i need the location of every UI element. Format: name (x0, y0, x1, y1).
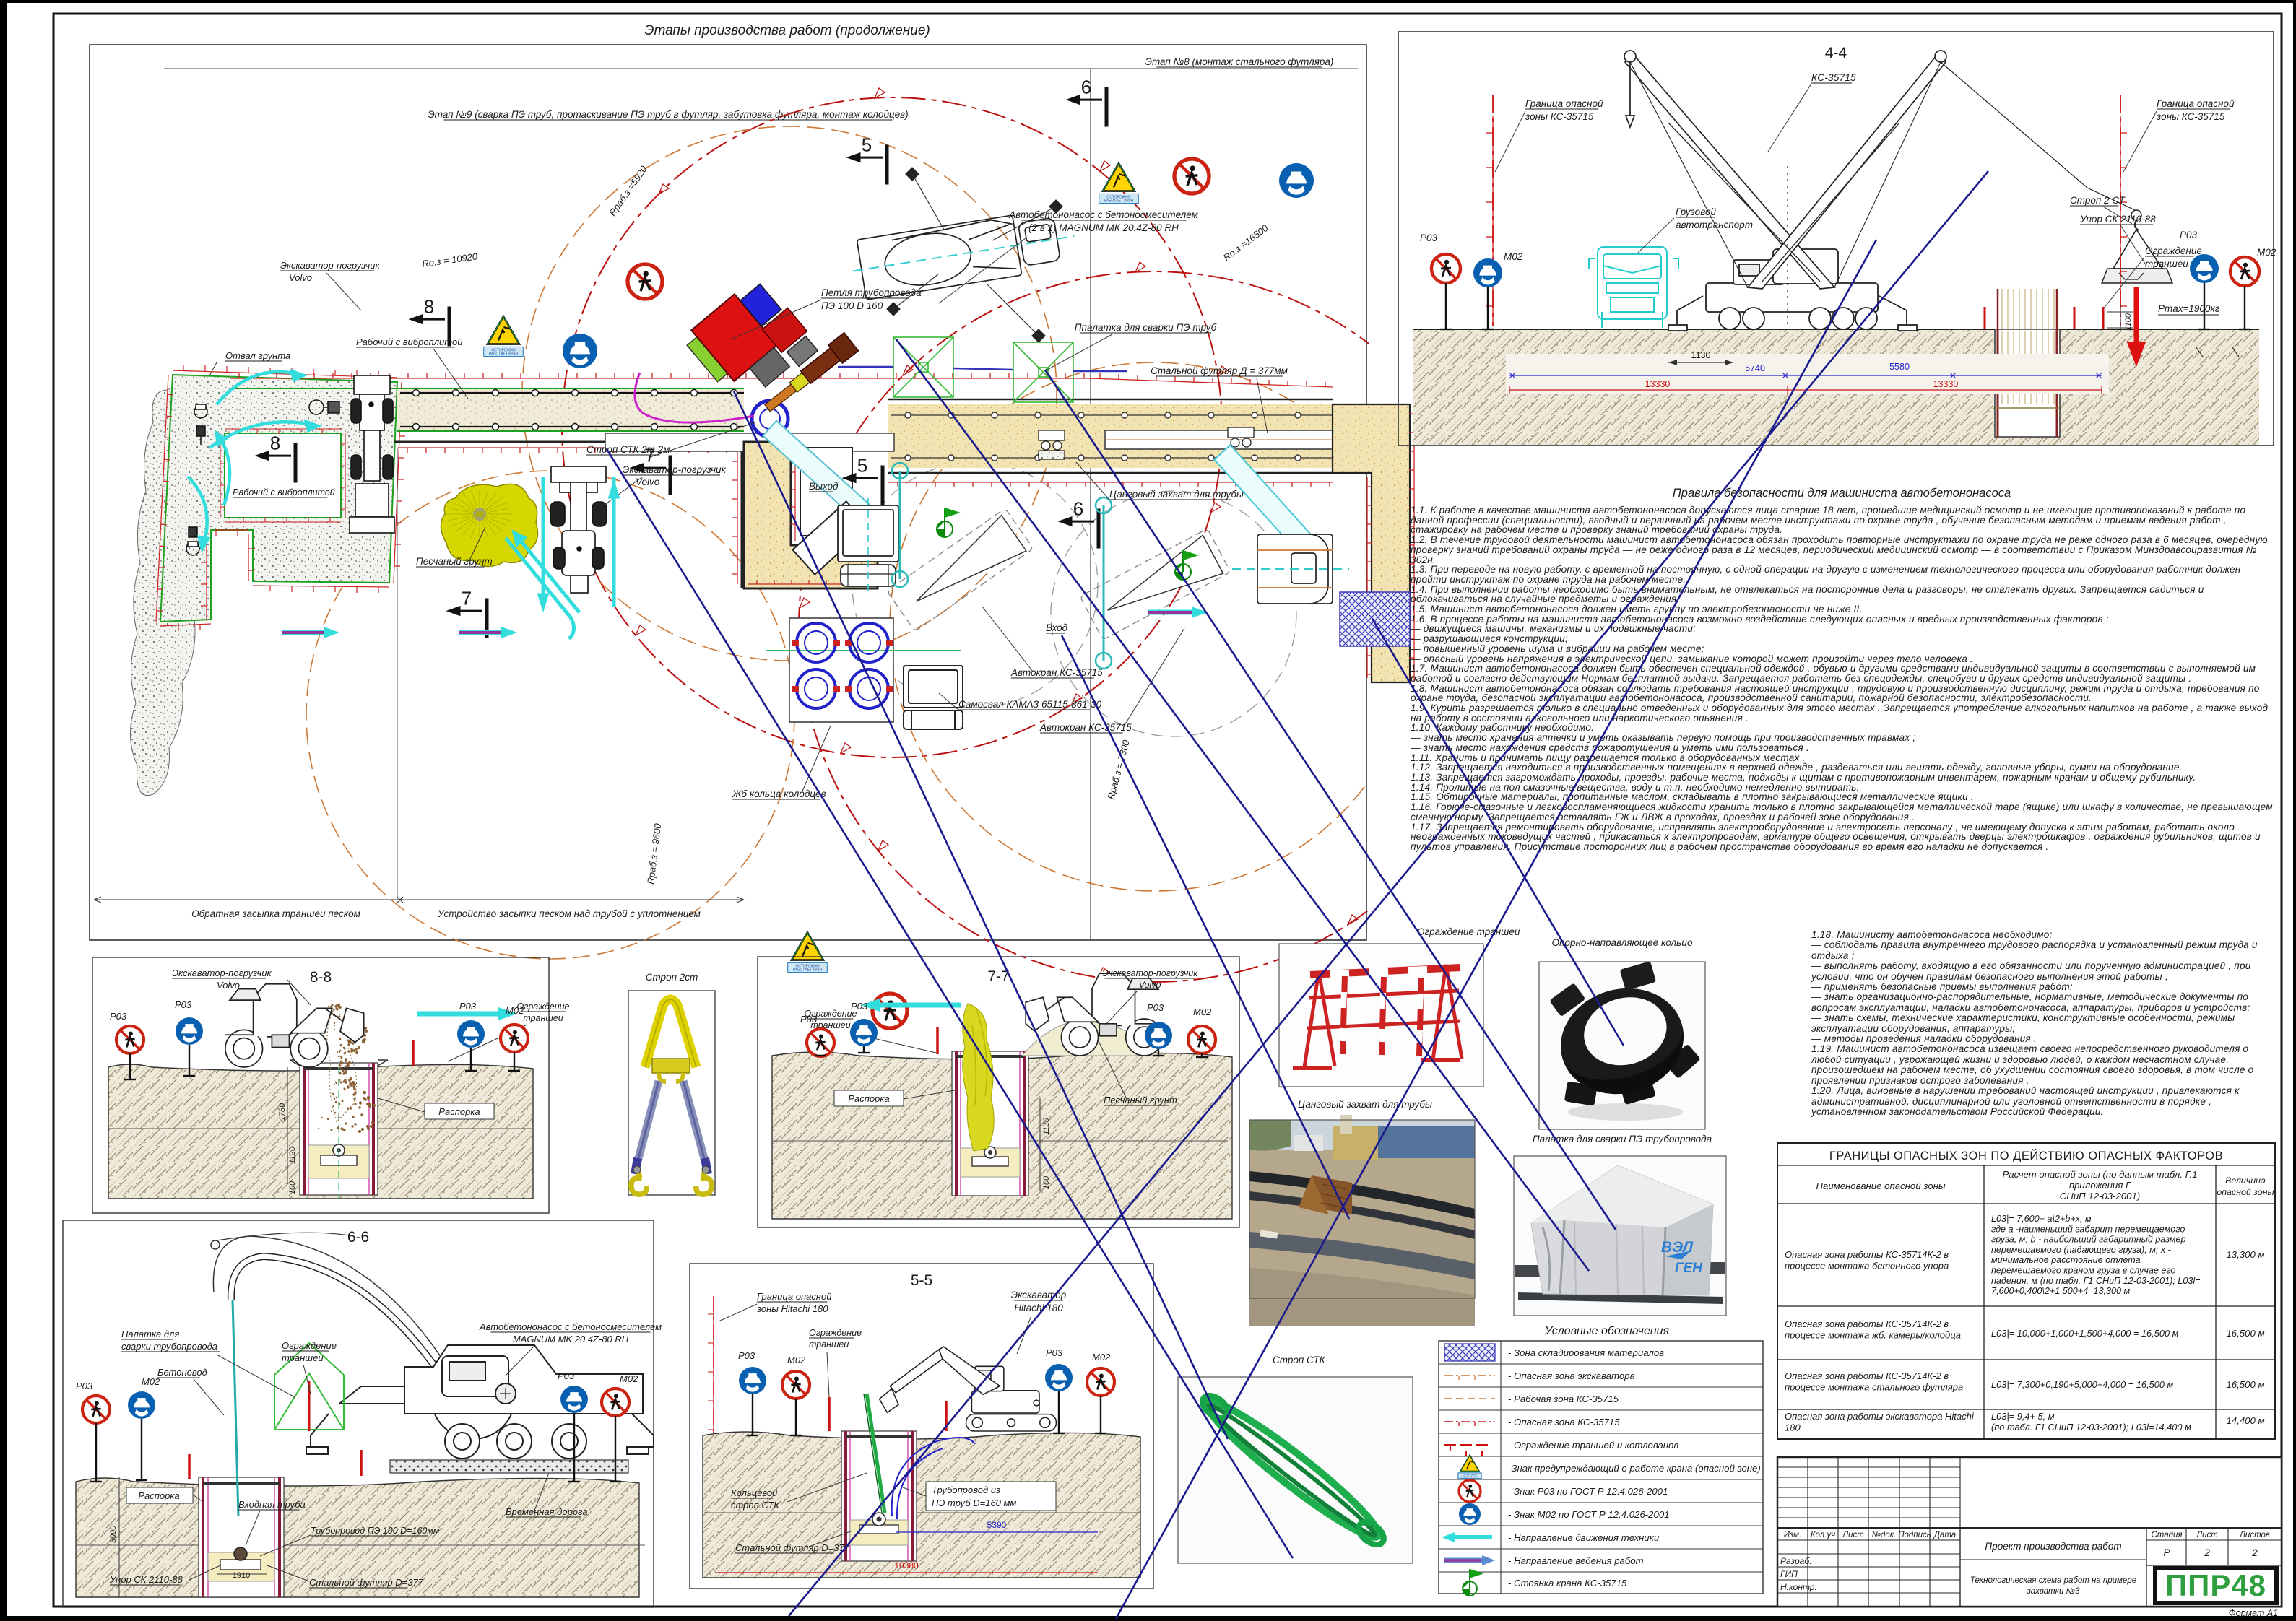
svg-text:- Опасная зона экскаватора: - Опасная зона экскаватора (1508, 1370, 1635, 1381)
svg-text:6-6: 6-6 (347, 1229, 369, 1246)
svg-text:захватки №3: захватки №3 (2027, 1587, 2081, 1596)
svg-text:сварки трубопровода: сварки трубопровода (121, 1341, 217, 1352)
svg-text:Стальной футляр D=377: Стальной футляр D=377 (735, 1542, 850, 1553)
svg-text:- Направление ведения работ: - Направление ведения работ (1508, 1555, 1644, 1566)
svg-text:Листов: Листов (2239, 1531, 2270, 1539)
svg-text:1100: 1100 (2124, 313, 2133, 331)
svg-text:Ппалатка для сварки ПЭ труб: Ппалатка для сварки ПЭ труб (1075, 322, 1217, 333)
svg-text:Ограждение: Ограждение (809, 1328, 862, 1338)
svg-text:Изм.: Изм. (1784, 1531, 1802, 1539)
svg-text:Pmax=1900кг: Pmax=1900кг (2158, 303, 2220, 314)
svg-text:ГИП: ГИП (1780, 1569, 1798, 1579)
svg-text:ГЕН: ГЕН (1675, 1261, 1703, 1276)
svg-text:(по табл. Г1 СНиП 12-03-2001);: (по табл. Г1 СНиП 12-03-2001); L03l=14,4… (1991, 1422, 2191, 1433)
svg-text:L03|= 7,300+0,190+5,000+4,000: L03|= 7,300+0,190+5,000+4,000 = 16,500 м (1991, 1379, 2173, 1390)
svg-text:Р: Р (2163, 1547, 2170, 1558)
svg-text:Р03: Р03 (1046, 1347, 1063, 1358)
svg-text:№док.: №док. (1872, 1531, 1897, 1539)
svg-text:Обратная засыпка траншеи песко: Обратная засыпка траншеи песком (191, 908, 360, 919)
svg-text:Рабочий с виброплитой: Рабочий с виброплитой (233, 487, 335, 497)
svg-text:Лист: Лист (2196, 1531, 2218, 1539)
svg-text:строп СТК: строп СТК (731, 1500, 780, 1511)
svg-text:М02: М02 (1193, 1007, 1212, 1017)
svg-text:минимальное расстояние отлета: минимальное расстояние отлета (1991, 1255, 2141, 1265)
svg-text:8: 8 (424, 295, 434, 317)
svg-text:перемещаемого (падающего груза: перемещаемого (падающего груза), м; х - (1991, 1245, 2171, 1255)
svg-text:ГРАНИЦЫ ОПАСНЫХ ЗОН ПО ДЕЙСТВИ: ГРАНИЦЫ ОПАСНЫХ ЗОН ПО ДЕЙСТВИЮ ОПАСНЫХ … (1829, 1149, 2223, 1162)
svg-text:Упор СК 2110-88: Упор СК 2110-88 (109, 1574, 183, 1585)
svg-text:Граница опасной: Граница опасной (757, 1291, 832, 1302)
svg-text:Р03: Р03 (800, 1014, 818, 1025)
svg-text:М02: М02 (1092, 1352, 1111, 1363)
svg-text:100: 100 (1042, 1175, 1051, 1189)
svg-text:Volvo: Volvo (1139, 980, 1161, 990)
svg-text:5: 5 (862, 134, 872, 155)
svg-text:Hitachi 180: Hitachi 180 (1014, 1303, 1063, 1313)
svg-text:Упор СК 2110-88: Упор СК 2110-88 (2079, 214, 2156, 225)
svg-text:М02: М02 (506, 1005, 524, 1016)
svg-text:Ограждение траншеи: Ограждение траншеи (1417, 926, 1520, 937)
svg-text:4-4: 4-4 (1825, 45, 1847, 61)
svg-text:Временная дорога: Временная дорога (506, 1506, 588, 1517)
svg-text:- Рабочая зона КС-35715: - Рабочая зона КС-35715 (1508, 1394, 1619, 1404)
svg-text:Трубопровод из: Трубопровод из (932, 1485, 1000, 1495)
svg-text:-Знак предупреждающий о работе: -Знак предупреждающий о работе крана (оп… (1508, 1463, 1761, 1474)
svg-text:РАБОТАЕТ КРАН: РАБОТАЕТ КРАН (793, 968, 823, 972)
svg-text:Лист: Лист (1842, 1531, 1864, 1539)
svg-text:8: 8 (270, 432, 280, 453)
svg-text:Отвал грунта: Отвал грунта (225, 350, 290, 361)
svg-text:Стальной футляр D=377: Стальной футляр D=377 (309, 1577, 424, 1588)
svg-text:Volvo: Volvo (636, 477, 660, 487)
svg-text:Н.контр.: Н.контр. (1780, 1582, 1817, 1592)
svg-text:Цанговый захват для трубы: Цанговый захват для трубы (1298, 1099, 1432, 1110)
svg-text:Автобетононасос с бетоносмесит: Автобетононасос с бетоносмесителем (479, 1321, 662, 1332)
svg-text:L03|= 10,000+1,000+1,500+4,000: L03|= 10,000+1,000+1,500+4,000 = 16,500 … (1991, 1328, 2179, 1339)
svg-text:Строп 2 СТ: Строп 2 СТ (2070, 195, 2126, 206)
svg-text:Этап №9 (сварка ПЭ труб, прота: Этап №9 (сварка ПЭ труб, протаскивание П… (428, 109, 908, 120)
svg-text:Экскаватор-погрузчик: Экскаватор-погрузчик (172, 968, 272, 978)
svg-text:Ограждение: Ограждение (282, 1340, 337, 1351)
svg-text:РАБОТАЕТ КРАН: РАБОТАЕТ КРАН (1461, 1475, 1478, 1478)
svg-text:Самосвал КАМАЗ 65115-861-30: Самосвал КАМАЗ 65115-861-30 (958, 699, 1102, 710)
svg-text:ВЭЛ: ВЭЛ (1661, 1239, 1694, 1256)
svg-text:Р03: Р03 (175, 999, 192, 1010)
svg-text:1120: 1120 (288, 1146, 297, 1164)
svg-text:ПЭ труб D=160 мм: ПЭ труб D=160 мм (932, 1498, 1016, 1508)
svg-text:зоны КС-35715: зоны КС-35715 (2156, 111, 2225, 122)
svg-text:5740: 5740 (1745, 363, 1765, 373)
svg-text:- Направление движения техники: - Направление движения техники (1508, 1532, 1660, 1543)
svg-text:Ограждение: Ограждение (516, 1001, 569, 1012)
svg-text:7,600+0,400\2+1,500+4=13,300 м: 7,600+0,400\2+1,500+4=13,300 м (1991, 1286, 2130, 1296)
svg-text:Кольцевой: Кольцевой (731, 1487, 777, 1498)
svg-text:5-5: 5-5 (911, 1272, 932, 1289)
svg-text:зоны КС-35715: зоны КС-35715 (1525, 111, 1594, 122)
svg-text:Расчет опасной зоны (по данным: Расчет опасной зоны (по данным табл. Г.1 (2002, 1169, 2197, 1180)
svg-text:Выход: Выход (809, 481, 839, 492)
svg-text:MAGNUM MK 20.4Z-80 RH: MAGNUM MK 20.4Z-80 RH (513, 1334, 629, 1344)
svg-text:траншеи: траншеи (282, 1352, 324, 1363)
svg-text:16,500 м: 16,500 м (2226, 1328, 2264, 1339)
svg-text:Устройство засыпки песком над: Устройство засыпки песком над трубой с у… (437, 908, 701, 919)
svg-text:Опасная зона работы КС-35714К-: Опасная зона работы КС-35714К-2 в (1785, 1249, 1949, 1260)
svg-text:L03|= 9,4+ 5, м: L03|= 9,4+ 5, м (1991, 1411, 2055, 1422)
svg-text:СНиП 12-03-2001): СНиП 12-03-2001) (2060, 1191, 2140, 1201)
svg-text:М02: М02 (620, 1373, 638, 1384)
svg-text:Граница опасной: Граница опасной (1525, 98, 1603, 109)
svg-text:2: 2 (2251, 1547, 2258, 1558)
svg-text:Р03: Р03 (1147, 1002, 1164, 1013)
svg-text:Экскаватор-погрузчик: Экскаватор-погрузчик (1102, 968, 1198, 978)
svg-text:7: 7 (645, 444, 655, 466)
svg-text:14,400 м: 14,400 м (2226, 1415, 2264, 1426)
svg-text:Автобетононасос с бетоносмесит: Автобетононасос с бетоносмесителем (1008, 209, 1198, 220)
svg-text:Подпись: Подпись (1898, 1531, 1931, 1539)
svg-text:Кол.уч: Кол.уч (1811, 1531, 1835, 1539)
svg-text:РАБОТАЕТ КРАН: РАБОТАЕТ КРАН (489, 352, 519, 356)
svg-text:Ограждение: Ограждение (2145, 245, 2202, 256)
svg-text:Технологическая схема работ на: Технологическая схема работ на примере (1970, 1576, 2136, 1585)
svg-text:траншеи: траншеи (2145, 258, 2188, 269)
svg-text:Опорно-направляющее кольцо: Опорно-направляющее кольцо (1552, 937, 1693, 948)
svg-text:процессе монтажа жб. камеры/ко: процессе монтажа жб. камеры/колодца (1785, 1330, 1961, 1341)
svg-text:6: 6 (1081, 76, 1091, 97)
svg-text:1780: 1780 (278, 1103, 287, 1121)
svg-text:зоны Hitachi 180: зоны Hitachi 180 (756, 1303, 828, 1314)
svg-text:КС-35715: КС-35715 (1811, 71, 1856, 83)
svg-text:Формат А1: Формат А1 (2229, 1608, 2278, 1618)
svg-text:Условные обозначения: Условные обозначения (1544, 1325, 1670, 1337)
svg-text:2: 2 (2204, 1547, 2210, 1558)
svg-text:Строп СТК: Строп СТК (1273, 1355, 1326, 1365)
svg-text:Дата: Дата (1933, 1531, 1956, 1539)
svg-text:приложения Г: приложения Г (2069, 1180, 2131, 1191)
svg-text:Строп 2ст: Строп 2ст (646, 972, 698, 983)
svg-text:Жб кольца колодцев: Жб кольца колодцев (732, 788, 826, 799)
svg-text:- Знак Р03 по ГОСТ Р 12.4.026-: - Знак Р03 по ГОСТ Р 12.4.026-2001 (1508, 1486, 1668, 1497)
svg-text:13,300 м: 13,300 м (2226, 1249, 2264, 1260)
svg-text:процессе монтажа стального фут: процессе монтажа стального футляра (1785, 1382, 1963, 1393)
svg-text:1910: 1910 (233, 1571, 250, 1580)
svg-text:Рабочий с виброплитой: Рабочий с виброплитой (356, 336, 462, 347)
svg-text:Р03: Р03 (76, 1381, 93, 1391)
svg-text:Проект производства работ: Проект производства работ (1985, 1541, 2121, 1552)
svg-text:М02: М02 (142, 1376, 160, 1387)
svg-text:Экскаватор-погрузчик: Экскаватор-погрузчик (280, 260, 380, 271)
svg-text:Р03: Р03 (738, 1350, 755, 1361)
svg-text:где а -наименьший габарит пере: где а -наименьший габарит перемещаемого (1991, 1224, 2185, 1234)
svg-text:Этапы производства работ (прод: Этапы производства работ (продолжение) (644, 23, 930, 38)
svg-text:6: 6 (1073, 497, 1083, 519)
svg-text:Р03: Р03 (851, 1001, 868, 1012)
svg-text:10380: 10380 (894, 1560, 919, 1570)
svg-text:Грузовой: Грузовой (1676, 207, 1716, 217)
svg-text:- Зона складирования материало: - Зона складирования материалов (1508, 1347, 1664, 1358)
svg-text:8-8: 8-8 (310, 969, 332, 986)
svg-text:Палатка для: Палатка для (121, 1329, 179, 1339)
svg-text:Вход: Вход (1046, 622, 1068, 633)
svg-text:- Ограждение траншей и котлова: - Ограждение траншей и котлованов (1508, 1440, 1678, 1451)
svg-text:Р03: Р03 (2180, 230, 2198, 240)
svg-text:Петля трубопровода: Петля трубопровода (821, 287, 922, 298)
svg-text:Р03: Р03 (558, 1370, 575, 1381)
svg-text:Автокран КС-35715: Автокран КС-35715 (1010, 667, 1103, 678)
svg-text:РАБОТАЕТ КРАН: РАБОТАЕТ КРАН (1104, 199, 1134, 203)
svg-text:- Опасная зона КС-35715: - Опасная зона КС-35715 (1508, 1417, 1620, 1427)
svg-text:16,500 м: 16,500 м (2226, 1379, 2264, 1390)
svg-text:Распорка: Распорка (438, 1106, 480, 1117)
svg-text:Строп СТК 2т 2м: Строп СТК 2т 2м (586, 444, 670, 455)
svg-text:траншеи: траншеи (809, 1339, 849, 1350)
svg-text:Бетоновод: Бетоновод (157, 1367, 207, 1378)
svg-text:Volvo: Volvo (289, 272, 312, 283)
svg-text:L03|= 7,600+ а\2+b+х, м: L03|= 7,600+ а\2+b+х, м (1991, 1214, 2092, 1224)
svg-text:Трубопровод ПЭ 100 D=160мм: Трубопровод ПЭ 100 D=160мм (311, 1526, 440, 1536)
svg-text:М02: М02 (2257, 247, 2276, 258)
svg-text:Песчаный грунт: Песчаный грунт (1104, 1095, 1177, 1105)
svg-text:13330: 13330 (1645, 379, 1671, 389)
svg-text:Распорка: Распорка (138, 1490, 179, 1501)
svg-text:1130: 1130 (1691, 350, 1711, 360)
svg-text:Наименование опасной зоны: Наименование опасной зоны (1816, 1181, 1945, 1191)
svg-text:5580: 5580 (1889, 362, 1910, 372)
svg-text:Опасная зона работы КС-35714К-: Опасная зона работы КС-35714К-2 в (1785, 1370, 1949, 1381)
svg-text:груза, м; b - наибольший габар: груза, м; b - наибольший габаритный разм… (1991, 1235, 2186, 1245)
svg-text:Входная труба: Входная труба (238, 1499, 306, 1510)
svg-text:Опасная зона работы КС-35714К-: Опасная зона работы КС-35714К-2 в (1785, 1318, 1949, 1329)
svg-text:1120: 1120 (1042, 1117, 1051, 1135)
svg-text:Р03: Р03 (110, 1011, 127, 1022)
svg-text:Автокран КС-35715: Автокран КС-35715 (1039, 722, 1132, 733)
svg-text:опасной зоны: опасной зоны (2217, 1187, 2274, 1197)
svg-text:- Стоянка крана КС-35715: - Стоянка крана КС-35715 (1508, 1578, 1627, 1589)
svg-text:Песчаный грунт: Песчаный грунт (416, 556, 493, 567)
svg-text:(2 в 1) MAGNUM МК 20.4Z-80 RH: (2 в 1) MAGNUM МК 20.4Z-80 RH (1028, 222, 1179, 233)
svg-text:траншеи: траншеи (523, 1013, 563, 1023)
svg-text:180: 180 (1785, 1422, 1801, 1433)
svg-text:Р03: Р03 (459, 1001, 477, 1012)
svg-text:Граница опасной: Граница опасной (2157, 98, 2235, 109)
svg-text:100: 100 (288, 1181, 297, 1194)
svg-text:Распорка: Распорка (848, 1093, 889, 1104)
svg-text:Этап №8 (монтаж стального футл: Этап №8 (монтаж стального футляра) (1145, 56, 1334, 67)
svg-text:13330: 13330 (1933, 379, 1959, 389)
svg-text:Опасная зона работы экскаватор: Опасная зона работы экскаватора Hitachi (1785, 1411, 1975, 1422)
svg-text:ПЭ 100 D 160: ПЭ 100 D 160 (821, 300, 883, 311)
svg-text:Стадия: Стадия (2151, 1531, 2182, 1539)
svg-text:падения, м (по табл. Г1 СНиП 1: падения, м (по табл. Г1 СНиП 12-03-2001)… (1991, 1276, 2201, 1286)
svg-text:Разраб.: Разраб. (1780, 1556, 1811, 1566)
svg-text:Величина: Величина (2225, 1175, 2266, 1186)
svg-text:М02: М02 (1504, 251, 1523, 262)
svg-text:5390: 5390 (987, 1520, 1007, 1530)
svg-text:Стальной футляр Д = 377мм: Стальной футляр Д = 377мм (1151, 365, 1288, 376)
svg-text:Volvo: Volvo (217, 980, 240, 991)
svg-text:автотранспорт: автотранспорт (1676, 220, 1753, 230)
svg-text:процессе монтажа бетонного упо: процессе монтажа бетонного упора (1785, 1261, 1949, 1272)
svg-text:5: 5 (857, 454, 867, 476)
svg-text:3000: 3000 (109, 1525, 118, 1543)
svg-text:Р03: Р03 (1420, 232, 1438, 243)
svg-text:7: 7 (462, 587, 472, 609)
svg-text:Правила безопасности для машин: Правила безопасности для машиниста автоб… (1673, 487, 2011, 500)
svg-text:ППР48: ППР48 (2165, 1568, 2266, 1602)
svg-text:М02: М02 (787, 1355, 806, 1365)
svg-text:Палатка для сварки ПЭ трубопро: Палатка для сварки ПЭ трубопровода (1533, 1134, 1712, 1144)
svg-text:- Знак М02 по ГОСТ Р 12.4.026-: - Знак М02 по ГОСТ Р 12.4.026-2001 (1508, 1509, 1670, 1520)
svg-text:перемещаемого краном груза в с: перемещаемого краном груза в случае его (1991, 1266, 2175, 1276)
